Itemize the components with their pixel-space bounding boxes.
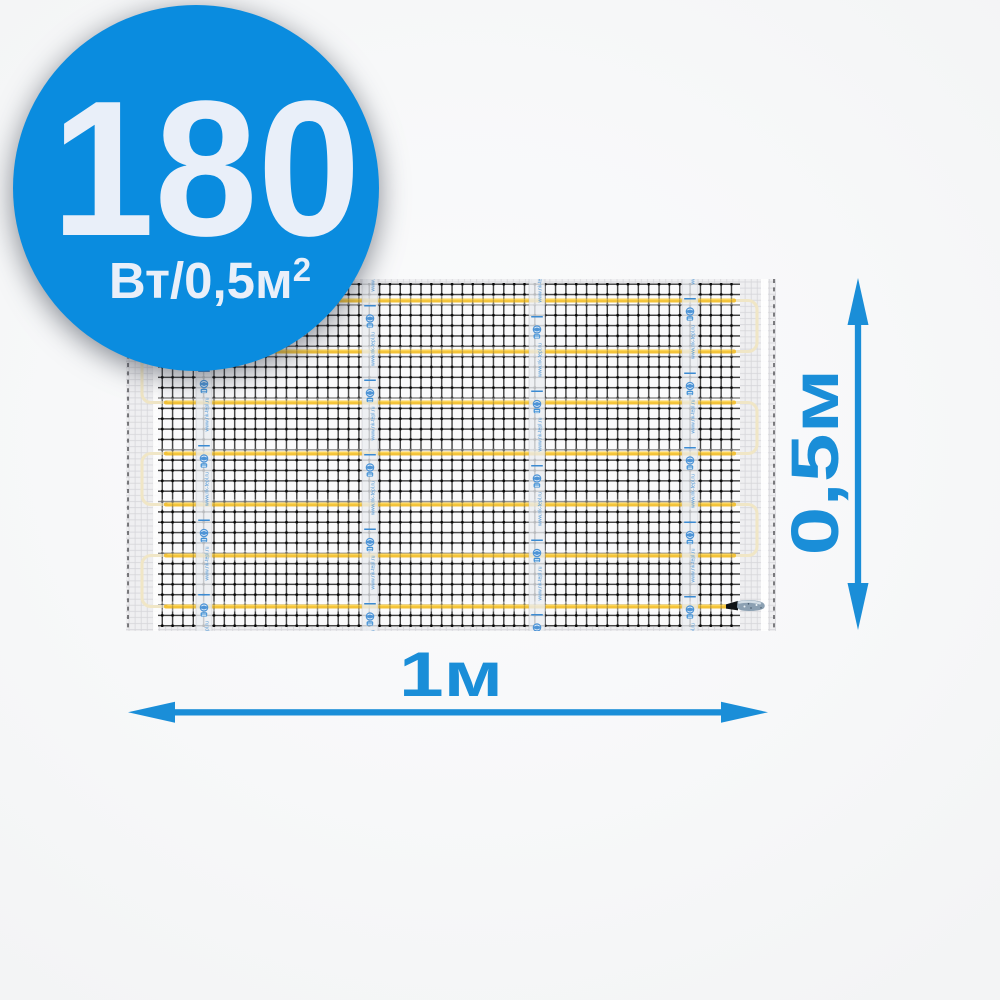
svg-text:www.nk-tepl.ru: www.nk-tepl.ru	[538, 417, 544, 451]
svg-text:www.nk-tepl.ru: www.nk-tepl.ru	[538, 279, 544, 303]
svg-text:www.nk-tepl.ru: www.nk-tepl.ru	[538, 343, 544, 377]
svg-text:www.nk-tepl.ru: www.nk-tepl.ru	[371, 481, 377, 515]
svg-text:www.nk-tepl.ru: www.nk-tepl.ru	[205, 472, 211, 506]
svg-text:www.nk-tepl.ru: www.nk-tepl.ru	[691, 399, 697, 433]
svg-text:www.nk-tepl.ru: www.nk-tepl.ru	[691, 325, 697, 359]
svg-text:www.nk-tepl.ru: www.nk-tepl.ru	[691, 474, 697, 508]
svg-text:www.nk-tepl.ru: www.nk-tepl.ru	[691, 623, 697, 631]
svg-text:www.nk-tepl.ru: www.nk-tepl.ru	[691, 279, 697, 285]
svg-text:www.nk-tepl.ru: www.nk-tepl.ru	[371, 406, 377, 440]
svg-text:www.nk-tepl.ru: www.nk-tepl.ru	[371, 555, 377, 589]
svg-text:www.nk-tepl.ru: www.nk-tepl.ru	[371, 332, 377, 366]
svg-text:www.nk-tepl.ru: www.nk-tepl.ru	[538, 492, 544, 526]
svg-text:www.nk-tepl.ru: www.nk-tepl.ru	[205, 621, 211, 631]
svg-text:www.nk-tepl.ru: www.nk-tepl.ru	[691, 548, 697, 582]
svg-text:www.nk-tepl.ru: www.nk-tepl.ru	[205, 546, 211, 580]
svg-text:www.nk-tepl.ru: www.nk-tepl.ru	[205, 397, 211, 431]
svg-text:www.nk-tepl.ru: www.nk-tepl.ru	[538, 566, 544, 600]
svg-text:www.nk-tepl.ru: www.nk-tepl.ru	[371, 630, 377, 631]
